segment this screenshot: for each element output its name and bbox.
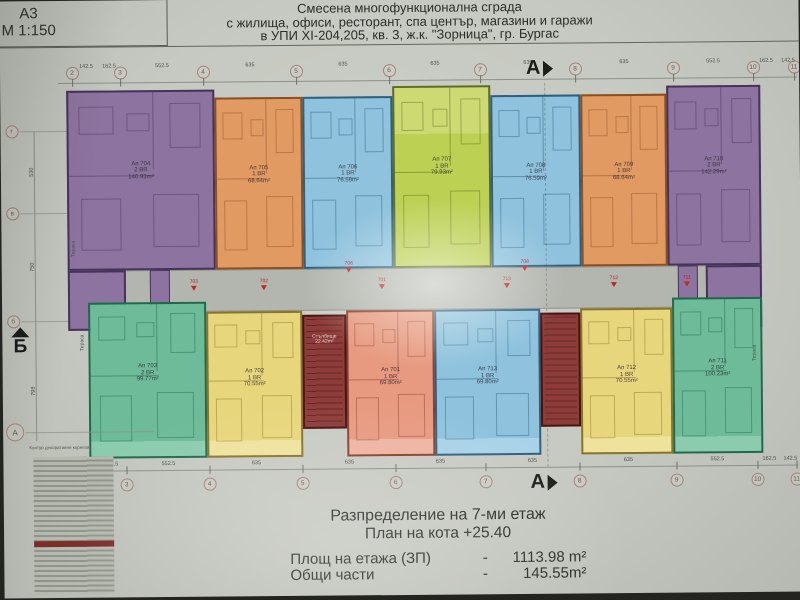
furniture: [590, 197, 613, 248]
entrance-marker-711: 711: [679, 275, 695, 286]
entrance-marker-number: 708: [517, 260, 533, 266]
furniture: [312, 199, 337, 250]
furniture: [81, 198, 122, 251]
furniture: [445, 397, 474, 440]
grid-leader: [20, 213, 67, 214]
entrance-arrow-icon: [379, 284, 385, 289]
furniture: [734, 308, 753, 348]
grid-line-bottom: [104, 465, 799, 472]
dimension-label: 635: [245, 62, 254, 68]
entrance-marker-701: 701: [374, 278, 390, 289]
furniture: [245, 330, 260, 344]
furniture: [126, 113, 149, 131]
furniture: [543, 194, 571, 245]
common-parts-label: Общи части: [290, 566, 460, 583]
grid-line-top: [58, 77, 797, 84]
dimension-label: 552.5: [155, 63, 169, 69]
grid-circle-top-8: 8: [568, 62, 581, 75]
section-arrow-icon: [548, 474, 558, 490]
room-divider: [495, 311, 497, 373]
furniture: [443, 323, 468, 346]
apartment-701: Ап 7011 BR69.80m²: [346, 310, 435, 457]
section-marker-a-top: А: [526, 57, 554, 80]
section-marker-a-bottom: А: [531, 471, 559, 494]
grid-leader: [21, 321, 68, 322]
furniture: [224, 200, 248, 251]
grid-circle-top-9: 9: [666, 61, 679, 74]
grid-tick: [796, 461, 797, 469]
entrance-marker-712: 712: [606, 276, 622, 287]
furniture: [496, 393, 529, 436]
apartment-709: Ап 7091 BR68.64m²: [580, 94, 667, 267]
dimension-label: 162.5: [763, 456, 777, 462]
apartment-label: Ап 7051 BR68.64m²: [217, 164, 301, 184]
grid-circle-bottom-4: 4: [203, 477, 216, 490]
grid-tick: [794, 73, 795, 81]
floor-area-label: Площ на етажа (ЗП): [290, 550, 460, 567]
apartment-711: Ап 7112 BR100.23m²: [672, 297, 763, 454]
drawing-sheet-photo: А3 М 1:150 Смесена многофункционална сгр…: [0, 0, 800, 598]
entrance-marker-number: 711: [679, 275, 695, 281]
entrance-marker-number: 701: [374, 278, 390, 284]
grid-circle-top-5: 5: [289, 64, 302, 77]
entrance-arrow-icon: [346, 267, 352, 272]
entrance-marker-number: 706: [341, 261, 357, 267]
entrance-marker-713: 713: [499, 277, 515, 288]
dimension-label: 750: [30, 263, 36, 272]
apartment-area: 99.77m²: [91, 376, 205, 383]
apartment-710: Ап 7102 BR142.29m²: [666, 85, 762, 266]
apartment-area: 142.29m²: [669, 169, 759, 176]
apartment-label: Ап 7081 BR76.59m²: [493, 162, 579, 182]
grid-circle-bottom-7: 7: [479, 475, 492, 488]
dimension-label: 552.5: [706, 58, 720, 64]
furniture: [500, 198, 525, 249]
room-divider: [354, 98, 356, 172]
grid-tick: [296, 77, 297, 85]
apartment-label: Ап 7091 BR68.64m²: [583, 161, 665, 181]
dimension-label: 635: [338, 61, 347, 67]
dimension-label: 552.5: [162, 461, 176, 467]
furniture: [398, 394, 425, 437]
grid-tick: [575, 74, 576, 82]
furniture: [432, 109, 447, 127]
apartment-label: Ап 7102 BR142.29m²: [669, 156, 759, 176]
dimension-label: 635: [528, 458, 537, 464]
furniture: [553, 107, 572, 151]
apartment-area: 68.64m²: [217, 177, 301, 184]
legend-corner: Ателиет 1 В 2 В: [746, 550, 800, 583]
dimension-label: 635: [345, 459, 354, 465]
section-marker-label: А: [531, 471, 546, 494]
dimension-label: 142.5: [781, 58, 795, 64]
furniture: [169, 102, 201, 148]
apartment-area: 79.93m²: [395, 170, 489, 177]
furniture: [216, 399, 242, 442]
apartment-702: Ап 7021 BR70.55m²: [206, 311, 303, 458]
dimension-label: 635: [430, 61, 439, 67]
apartment-707: Ап 7071 BR79.93m²: [392, 85, 492, 268]
grid-tick: [579, 462, 580, 470]
room-divider: [630, 96, 632, 170]
dimension-label: 552.5: [711, 456, 725, 462]
common-parts-dash: -: [460, 566, 510, 582]
dimension-label: 798: [31, 387, 37, 396]
furniture: [680, 312, 701, 336]
room-divider: [397, 312, 399, 374]
apartment-area: 76.59m²: [305, 177, 391, 184]
furniture: [731, 97, 751, 143]
legend-line: 2 В: [746, 574, 800, 583]
grid-circle-bottom-9: 9: [670, 473, 683, 486]
furniture: [222, 113, 242, 140]
room-divider: [261, 313, 263, 375]
apartment-label: Ап 7121 BR70.55m²: [583, 365, 671, 385]
grid-circle-top-6: 6: [382, 64, 395, 77]
apartment-area: 70.55m²: [583, 378, 671, 385]
furniture: [266, 196, 293, 247]
grid-circle-top-10: 10: [746, 60, 759, 73]
entrance-marker-number: 703: [186, 280, 202, 286]
caption-row-common-parts: Общи части - 145.55m²: [290, 565, 586, 584]
grid-circle-left-в: в: [6, 207, 19, 220]
furniture: [78, 107, 113, 135]
apartment-area: 70.55m²: [209, 381, 301, 388]
furniture: [704, 108, 719, 126]
apartment-label: Ап 7071 BR79.93m²: [395, 157, 489, 177]
grid-tick: [203, 78, 204, 86]
caption-block: Разпределение на 7-ми етаж План на кота …: [290, 505, 587, 584]
elevation-sketch: [33, 457, 114, 595]
entrance-marker-706: 706: [341, 261, 357, 272]
furniture: [590, 395, 615, 438]
furniture: [527, 117, 541, 134]
furniture: [617, 327, 631, 341]
apartment-area: 140.93m²: [69, 173, 213, 181]
furniture: [588, 110, 608, 137]
furniture: [382, 329, 396, 343]
grid-tick: [395, 464, 396, 472]
entrance-marker-number: 712: [606, 276, 622, 282]
grid-circle-bottom-3: 3: [120, 478, 133, 491]
furniture: [644, 318, 664, 355]
furniture: [407, 320, 426, 357]
grid-leader: [20, 131, 67, 132]
furniture: [339, 119, 353, 136]
terrace-label: Тераса: [79, 335, 85, 351]
entrance-arrow-icon: [611, 282, 617, 287]
dimension-label: 142.5: [784, 456, 798, 462]
apartment-area: 100.23m²: [675, 371, 761, 378]
apartment-713: Ап 7131 BR69.80m²: [434, 309, 541, 456]
furniture: [98, 317, 126, 342]
entrance-marker-number: 713: [499, 277, 515, 283]
apartment-706: Ап 7061 BR76.59m²: [302, 96, 393, 269]
grid-tick: [676, 462, 677, 470]
furniture: [450, 191, 481, 245]
furniture: [356, 397, 380, 440]
apartment-704: Ап 7042 BR140.93m²: [66, 90, 216, 271]
furniture: [588, 322, 609, 345]
furniture: [262, 395, 292, 438]
grid-circle-bottom-10: 10: [751, 472, 764, 485]
entrance-marker-708: 708: [517, 260, 533, 271]
grid-tick: [302, 465, 303, 473]
elevation-accent-band: [34, 541, 114, 548]
grid-circle-top-2: 2: [65, 66, 78, 79]
grid-circle-top-7: 7: [473, 63, 486, 76]
furniture: [157, 392, 194, 438]
apartment-label: Ап 7032 BR99.77m²: [91, 363, 205, 383]
staircase-label: Стълбище22.42m²: [304, 334, 344, 345]
furniture: [310, 112, 331, 139]
floor-area-dash: -: [460, 550, 510, 566]
grid-tick: [673, 74, 674, 82]
grid-tick: [72, 79, 73, 87]
furniture: [634, 392, 663, 435]
caption-heading: Разпределение на 7-ми етаж: [290, 505, 586, 526]
staircase-1: Стълбище22.42m²: [302, 314, 347, 428]
room-divider: [152, 92, 154, 169]
section-marker-label: А: [526, 57, 541, 80]
furniture: [215, 325, 237, 348]
entrance-arrow-icon: [261, 285, 267, 290]
dimension-label: 635: [252, 460, 261, 466]
grid-circle-bottom-5: 5: [296, 476, 309, 489]
furniture: [477, 328, 493, 342]
apartment-area: 69.80m²: [349, 380, 433, 387]
furniture: [153, 194, 200, 247]
grid-tick: [480, 75, 481, 83]
room-divider: [449, 88, 451, 166]
legend-line: Ателиет: [746, 550, 800, 559]
grid-tick: [757, 461, 758, 469]
furniture: [136, 322, 154, 337]
furniture: [709, 317, 723, 332]
room-divider: [724, 299, 726, 366]
grid-circle-top-4: 4: [196, 65, 209, 78]
grid-circle-bottom-11: 11: [790, 472, 800, 485]
furniture: [675, 101, 697, 129]
apartment-label: Ап 7021 BR70.55m²: [209, 368, 301, 388]
apartment-label: Ап 7042 BR140.93m²: [69, 160, 213, 181]
dimension-label: 635: [619, 59, 628, 65]
apartment-label: Ап 7011 BR69.80m²: [349, 367, 433, 387]
furniture: [615, 116, 628, 133]
furniture: [275, 109, 294, 153]
furniture: [460, 98, 481, 144]
grid-circle-left-г: г: [5, 125, 18, 138]
apartment-705: Ап 7051 BR68.64m²: [214, 97, 303, 270]
grid-tick: [126, 466, 127, 474]
furniture: [365, 108, 384, 152]
dimension-label: 162.5: [102, 63, 116, 69]
furniture: [355, 196, 383, 247]
furniture: [403, 195, 430, 249]
entrance-arrow-icon: [684, 281, 690, 286]
grid-circle-bottom-8: 8: [573, 474, 586, 487]
cornice-note: Контур декоративни корнизи: [29, 445, 89, 451]
terrace-label: Тераса: [751, 345, 757, 361]
apartment-708: Ап 7081 BR76.59m²: [490, 94, 581, 267]
grid-tick: [209, 466, 210, 474]
grid-tick: [753, 73, 754, 81]
apartment-area: 69.80m²: [437, 379, 539, 386]
staircase-area: 22.42m²: [304, 340, 344, 346]
furniture: [401, 102, 424, 131]
entrance-marker-number: 702: [256, 279, 272, 285]
dimension-label: 635: [624, 457, 633, 463]
section-marker-b: Б: [11, 327, 29, 357]
dimension-label: 530: [29, 168, 35, 177]
grid-tick: [485, 463, 486, 471]
entrance-arrow-icon: [191, 285, 197, 290]
furniture: [170, 313, 195, 353]
apartment-label: Ап 7061 BR76.59m²: [305, 164, 391, 184]
entrance-marker-703: 703: [186, 280, 202, 291]
furniture: [354, 324, 374, 347]
entrance-arrow-icon: [504, 283, 510, 288]
room-divider: [720, 87, 722, 164]
grid-circle-bottom-6: 6: [389, 476, 402, 489]
furniture: [676, 193, 702, 246]
apartment-712: Ап 7121 BR70.55m²: [580, 308, 673, 455]
section-marker-b-label: Б: [11, 337, 29, 357]
furniture: [725, 387, 753, 433]
furniture: [640, 106, 658, 150]
furniture: [498, 110, 519, 137]
apartment-label: Ап 7112 BR100.23m²: [675, 358, 761, 378]
room-divider: [156, 304, 158, 371]
apartment-703: Ап 7032 BR99.77m²: [88, 302, 207, 459]
entrance-marker-702: 702: [256, 279, 272, 290]
grid-tick: [120, 78, 121, 86]
furniture: [250, 119, 264, 136]
furniture: [508, 319, 531, 356]
furniture: [273, 321, 294, 358]
apartment-label: Ап 7131 BR69.80m²: [437, 366, 539, 386]
grid-tick: [389, 76, 390, 84]
room-divider: [633, 310, 635, 372]
dimension-label: 635: [436, 459, 445, 465]
terrace-label: Тераса: [71, 241, 77, 257]
room-divider: [265, 99, 267, 173]
common-parts-value: 145.55m²: [510, 565, 586, 582]
apartment-area: 68.64m²: [583, 174, 665, 181]
furniture: [682, 391, 706, 437]
grid-circle-left-б: б: [7, 315, 20, 328]
section-arrow-icon: [543, 60, 553, 76]
furniture: [100, 396, 132, 442]
stair-treads: [544, 316, 577, 422]
dimension-label: 162.5: [759, 58, 773, 64]
grid-circle-left-А: А: [6, 423, 24, 441]
furniture: [631, 193, 658, 244]
furniture: [721, 189, 750, 242]
dimension-label: 142.5: [79, 64, 93, 70]
entrance-arrow-icon: [522, 265, 528, 270]
apartment-area: 76.59m²: [493, 175, 579, 182]
